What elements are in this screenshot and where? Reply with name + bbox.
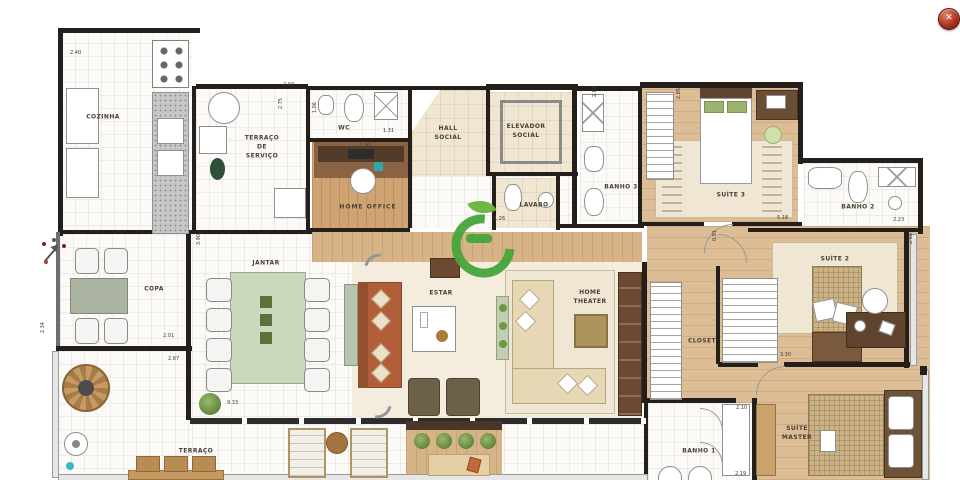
master-tv-cabinet (756, 404, 776, 476)
wall (638, 86, 642, 226)
wall (486, 88, 490, 176)
dim-label: 1.31 (383, 128, 394, 134)
window-suite-2 (910, 234, 917, 366)
plant-jantar (199, 393, 221, 415)
coffee-table-bowl (436, 330, 448, 342)
wall (642, 262, 647, 402)
wall (62, 28, 200, 33)
room-label-suite-2: SUÍTE 2 (821, 255, 850, 264)
room-label-banho-3: BANHO 3 (604, 183, 637, 192)
wall (644, 400, 648, 480)
dim-label: 9.33 (227, 400, 238, 406)
stove (152, 40, 189, 88)
green-apple-decor (499, 340, 507, 348)
sideboard-estar (344, 284, 358, 366)
master-pillow-1 (888, 396, 914, 430)
room-label-copa: COPA (144, 285, 164, 294)
wall (640, 222, 704, 226)
wc-toilet (344, 94, 364, 122)
dim-label: 0.91 (712, 230, 718, 241)
terraco-sofa-cushion (164, 456, 188, 472)
runner-suite-3-right (762, 146, 782, 212)
room-label-banho-1: BANHO 1 (682, 447, 715, 456)
dim-label: 2.19 (735, 471, 746, 477)
dining-chair (206, 278, 232, 302)
wall (310, 228, 410, 232)
dining-table (230, 272, 306, 384)
banho3-toilet (584, 188, 604, 216)
office-accessory (374, 162, 383, 171)
closet-shelves (650, 282, 682, 400)
copa-chair (75, 318, 99, 344)
dining-chair (206, 338, 232, 362)
deck-plant (436, 433, 452, 449)
wardrobe-suite-3 (646, 92, 674, 180)
terraco-side-table-center (72, 440, 80, 448)
wall (920, 366, 927, 375)
laundry-basin (208, 92, 240, 124)
watermark-logo (450, 198, 506, 278)
ht-ottoman (574, 314, 608, 348)
wc-sink (318, 95, 334, 115)
tv-suite-3 (766, 95, 786, 109)
kitchen-sink-2 (157, 150, 184, 176)
wardrobe-suite-2 (722, 278, 778, 363)
dining-centerpiece-1 (260, 296, 272, 308)
dim-label: 1.93 (360, 143, 371, 149)
deck-plant (480, 433, 496, 449)
dim-label: 2.87 (168, 356, 179, 362)
ht-wall-unit (618, 272, 642, 416)
banho1-tub (722, 404, 750, 476)
dining-chair (206, 368, 232, 392)
room-label-cozinha: COZINHA (86, 113, 120, 122)
wall (748, 228, 804, 232)
dining-chair (304, 278, 330, 302)
room-label-jantar: JANTAR (252, 259, 279, 268)
banho3-shower (582, 94, 604, 132)
green-apple-decor (499, 322, 507, 330)
lounger-table (326, 432, 348, 454)
wall (306, 86, 410, 90)
dim-label: 1.26 (494, 216, 505, 222)
banho2-shower-rack (878, 167, 916, 187)
bed3-pillow-2 (727, 101, 747, 113)
dim-label: 2.34 (40, 322, 46, 333)
copa-table (70, 278, 128, 314)
dim-label: 2.75 (278, 98, 284, 109)
copa-chair (104, 318, 128, 344)
kitchen-cabinet (66, 148, 99, 198)
room-label-hall-social: HALL SOCIAL (435, 124, 462, 142)
wall (732, 222, 802, 226)
dining-centerpiece-3 (260, 332, 272, 344)
dim-label: 2.83 (592, 86, 598, 97)
dim-label: 2.03 (283, 82, 294, 88)
room-label-terraco: TERRAÇO (179, 447, 213, 456)
coffee-table-decor (420, 312, 428, 328)
banho2-toilet (848, 171, 868, 203)
stool-suite-3 (764, 126, 782, 144)
dim-label: 2.10 (736, 405, 747, 411)
banho2-shower-head (888, 196, 902, 210)
office-chair (350, 168, 376, 194)
dim-label: 2.85 (676, 88, 682, 99)
kitchen-sink-1 (157, 118, 184, 144)
wall (490, 172, 578, 176)
room-label-estar: ESTAR (429, 289, 452, 298)
sofa-estar-back (358, 282, 368, 388)
master-nightstand (820, 430, 836, 452)
banho2-sink (808, 167, 842, 189)
banho3-sink (584, 146, 604, 172)
green-apple-decor (499, 304, 507, 312)
room-label-wc: WC (338, 124, 350, 133)
wall (408, 86, 488, 90)
dim-label: 2.23 (893, 217, 904, 223)
room-label-closet: CLOSET (688, 337, 716, 346)
wc-shower (374, 92, 398, 120)
dim-label: 2.68 (908, 233, 914, 244)
armchair-2 (446, 378, 480, 416)
wall (918, 158, 923, 234)
room-label-banho-2: BANHO 2 (841, 203, 874, 212)
dim-label: 3.30 (780, 352, 791, 358)
room-label-lavabo: LAVABO (519, 201, 548, 210)
wall (800, 228, 920, 232)
terraco-sofa-cushion (192, 456, 216, 472)
deck-rug (428, 454, 490, 476)
dim-label: 1.06 (312, 102, 318, 113)
copa-chair (75, 248, 99, 274)
deck-plant (414, 433, 430, 449)
north-arrow-icon (40, 238, 66, 268)
wall (190, 230, 312, 234)
wall (186, 232, 191, 420)
master-pillow-2 (888, 434, 914, 468)
dining-centerpiece-2 (260, 314, 272, 326)
wall (556, 224, 644, 228)
wall (800, 158, 920, 163)
coffee-table (412, 306, 456, 352)
deck-planter-bar (406, 421, 502, 430)
desk2-lamp (854, 320, 866, 332)
copa-chair (104, 248, 128, 274)
wall (306, 86, 310, 232)
terraco-grill-center (78, 380, 94, 396)
wall (56, 346, 192, 351)
dining-chair (304, 368, 330, 392)
dim-label: 5.18 (777, 215, 788, 221)
room-label-suite-3: SUÍTE 3 (717, 191, 746, 200)
wall (486, 84, 578, 90)
dim-label: 2.40 (70, 50, 81, 56)
dining-chair (304, 308, 330, 332)
terraco-sofa-cushion (136, 456, 160, 472)
room-label-home-theater: HOME THEATER (573, 288, 606, 306)
floor-plan-viewer: COZINHA TERRAÇO DE SERVIÇO WC HOME OFFIC… (0, 0, 960, 480)
dim-label: 3.90 (196, 234, 202, 245)
sun-lounger-2 (350, 428, 388, 478)
wall (576, 86, 642, 91)
bed3-pillow-1 (704, 101, 724, 113)
window-terraco-left (52, 351, 59, 478)
dim-label: 2.01 (163, 333, 174, 339)
washing-machine (199, 126, 227, 154)
wall (798, 82, 803, 164)
wall (408, 88, 412, 228)
wall (716, 266, 720, 364)
terraco-decor-dot (66, 462, 74, 470)
room-label-home-office: HOME OFFICE (339, 203, 396, 212)
chair-suite-2 (862, 288, 888, 314)
deck-plant (458, 433, 474, 449)
room-label-suite-master: SUÍTE MASTER (782, 424, 812, 442)
sun-lounger-1 (288, 428, 326, 478)
wall (572, 88, 577, 228)
wall (784, 362, 910, 367)
room-label-elevador-social: ELEVADOR SOCIAL (507, 122, 546, 140)
water-heater (210, 158, 225, 180)
armchair-1 (408, 378, 440, 416)
dining-chair (304, 338, 330, 362)
room-label-terraco-servico: TERRAÇO DE SERVIÇO (245, 134, 279, 161)
close-button[interactable]: ✕ (938, 8, 960, 30)
wall (556, 176, 560, 230)
window-suite-master (922, 370, 929, 480)
laundry-tub (274, 188, 306, 218)
dining-chair (206, 308, 232, 332)
office-monitor (348, 149, 374, 159)
wall (58, 28, 63, 236)
wall (192, 86, 196, 232)
